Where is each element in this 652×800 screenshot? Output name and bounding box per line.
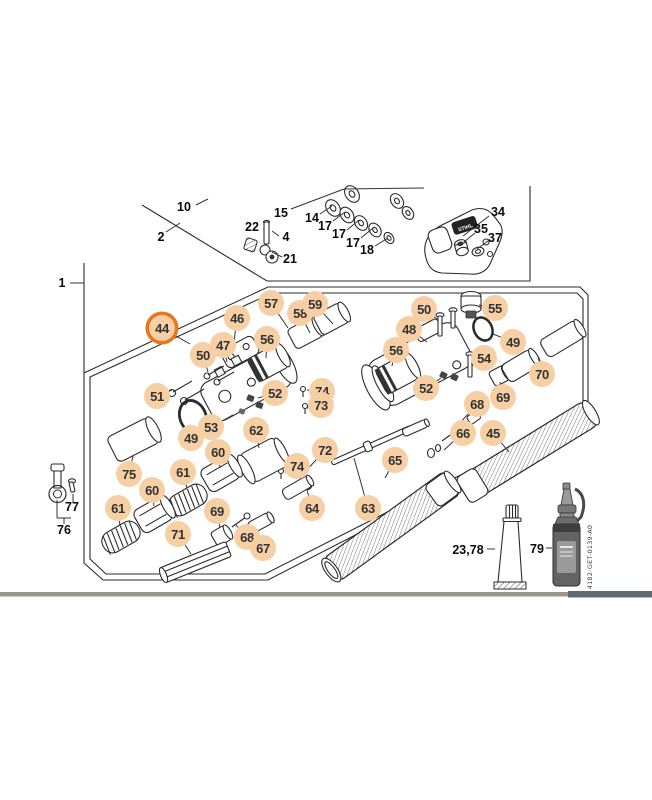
callout-69[interactable]: 69: [204, 498, 230, 524]
callout-73[interactable]: 73: [308, 392, 334, 418]
callout-68[interactable]: 68: [464, 391, 490, 417]
callout-74[interactable]: 74: [284, 453, 310, 479]
callout-72[interactable]: 72: [312, 437, 338, 463]
part-label-15: 15: [274, 206, 288, 220]
callout-54[interactable]: 54: [471, 345, 497, 371]
part-label-77: 77: [65, 500, 79, 514]
callout-60[interactable]: 60: [139, 477, 165, 503]
part-label-35: 35: [474, 222, 488, 236]
callout-44[interactable]: 44: [149, 315, 175, 341]
callout-64[interactable]: 64: [299, 495, 325, 521]
callout-62[interactable]: 62: [243, 417, 269, 443]
callout-56[interactable]: 56: [254, 326, 280, 352]
part-label-34: 34: [491, 205, 505, 219]
part-label-23,78: 23,78: [452, 543, 483, 557]
callout-46[interactable]: 46: [224, 305, 250, 331]
callout-52[interactable]: 52: [262, 380, 288, 406]
callout-50[interactable]: 50: [190, 342, 216, 368]
callout-55[interactable]: 55: [482, 295, 508, 321]
callout-67[interactable]: 67: [250, 535, 276, 561]
callout-61[interactable]: 61: [105, 495, 131, 521]
part-label-17: 17: [318, 219, 332, 233]
bottom-rule-right: [568, 591, 652, 598]
part-label-10: 10: [177, 200, 191, 214]
part-label-22: 22: [245, 220, 259, 234]
callout-49[interactable]: 49: [500, 329, 526, 355]
callout-56[interactable]: 56: [383, 337, 409, 363]
callout-70[interactable]: 70: [529, 361, 555, 387]
callout-69[interactable]: 69: [490, 384, 516, 410]
part-label-4: 4: [283, 230, 290, 244]
callout-57[interactable]: 57: [258, 290, 284, 316]
part-label-2: 2: [158, 230, 165, 244]
callout-49[interactable]: 49: [178, 425, 204, 451]
callout-66[interactable]: 66: [450, 420, 476, 446]
parts-diagram-page: STIHL: [0, 0, 652, 800]
part-label-17: 17: [346, 236, 360, 250]
callout-65[interactable]: 65: [382, 447, 408, 473]
part-label-76: 76: [57, 523, 71, 537]
bottom-rule: [0, 591, 652, 598]
callout-51[interactable]: 51: [144, 383, 170, 409]
callout-61[interactable]: 61: [170, 459, 196, 485]
oil-bottle-art: [553, 483, 584, 586]
callout-63[interactable]: 63: [355, 495, 381, 521]
clamp-nut-art: [461, 292, 481, 319]
part-label-1: 1: [59, 276, 66, 290]
part-label-14: 14: [305, 211, 319, 225]
part-label-17: 17: [332, 227, 346, 241]
callout-71[interactable]: 71: [165, 521, 191, 547]
part-label-79: 79: [530, 542, 544, 556]
callout-60[interactable]: 60: [205, 439, 231, 465]
bottom-rule-left: [0, 592, 576, 597]
callout-59[interactable]: 59: [302, 291, 328, 317]
callout-75[interactable]: 75: [116, 461, 142, 487]
adhesive-tube-art: [494, 505, 526, 589]
part-label-37: 37: [488, 231, 502, 245]
part-label-21: 21: [283, 252, 297, 266]
part-label-18: 18: [360, 243, 374, 257]
drawing-number: 4182-GET-0139-A0: [586, 519, 596, 595]
callout-52[interactable]: 52: [413, 375, 439, 401]
callout-45[interactable]: 45: [480, 420, 506, 446]
clamp-art: [49, 464, 76, 503]
